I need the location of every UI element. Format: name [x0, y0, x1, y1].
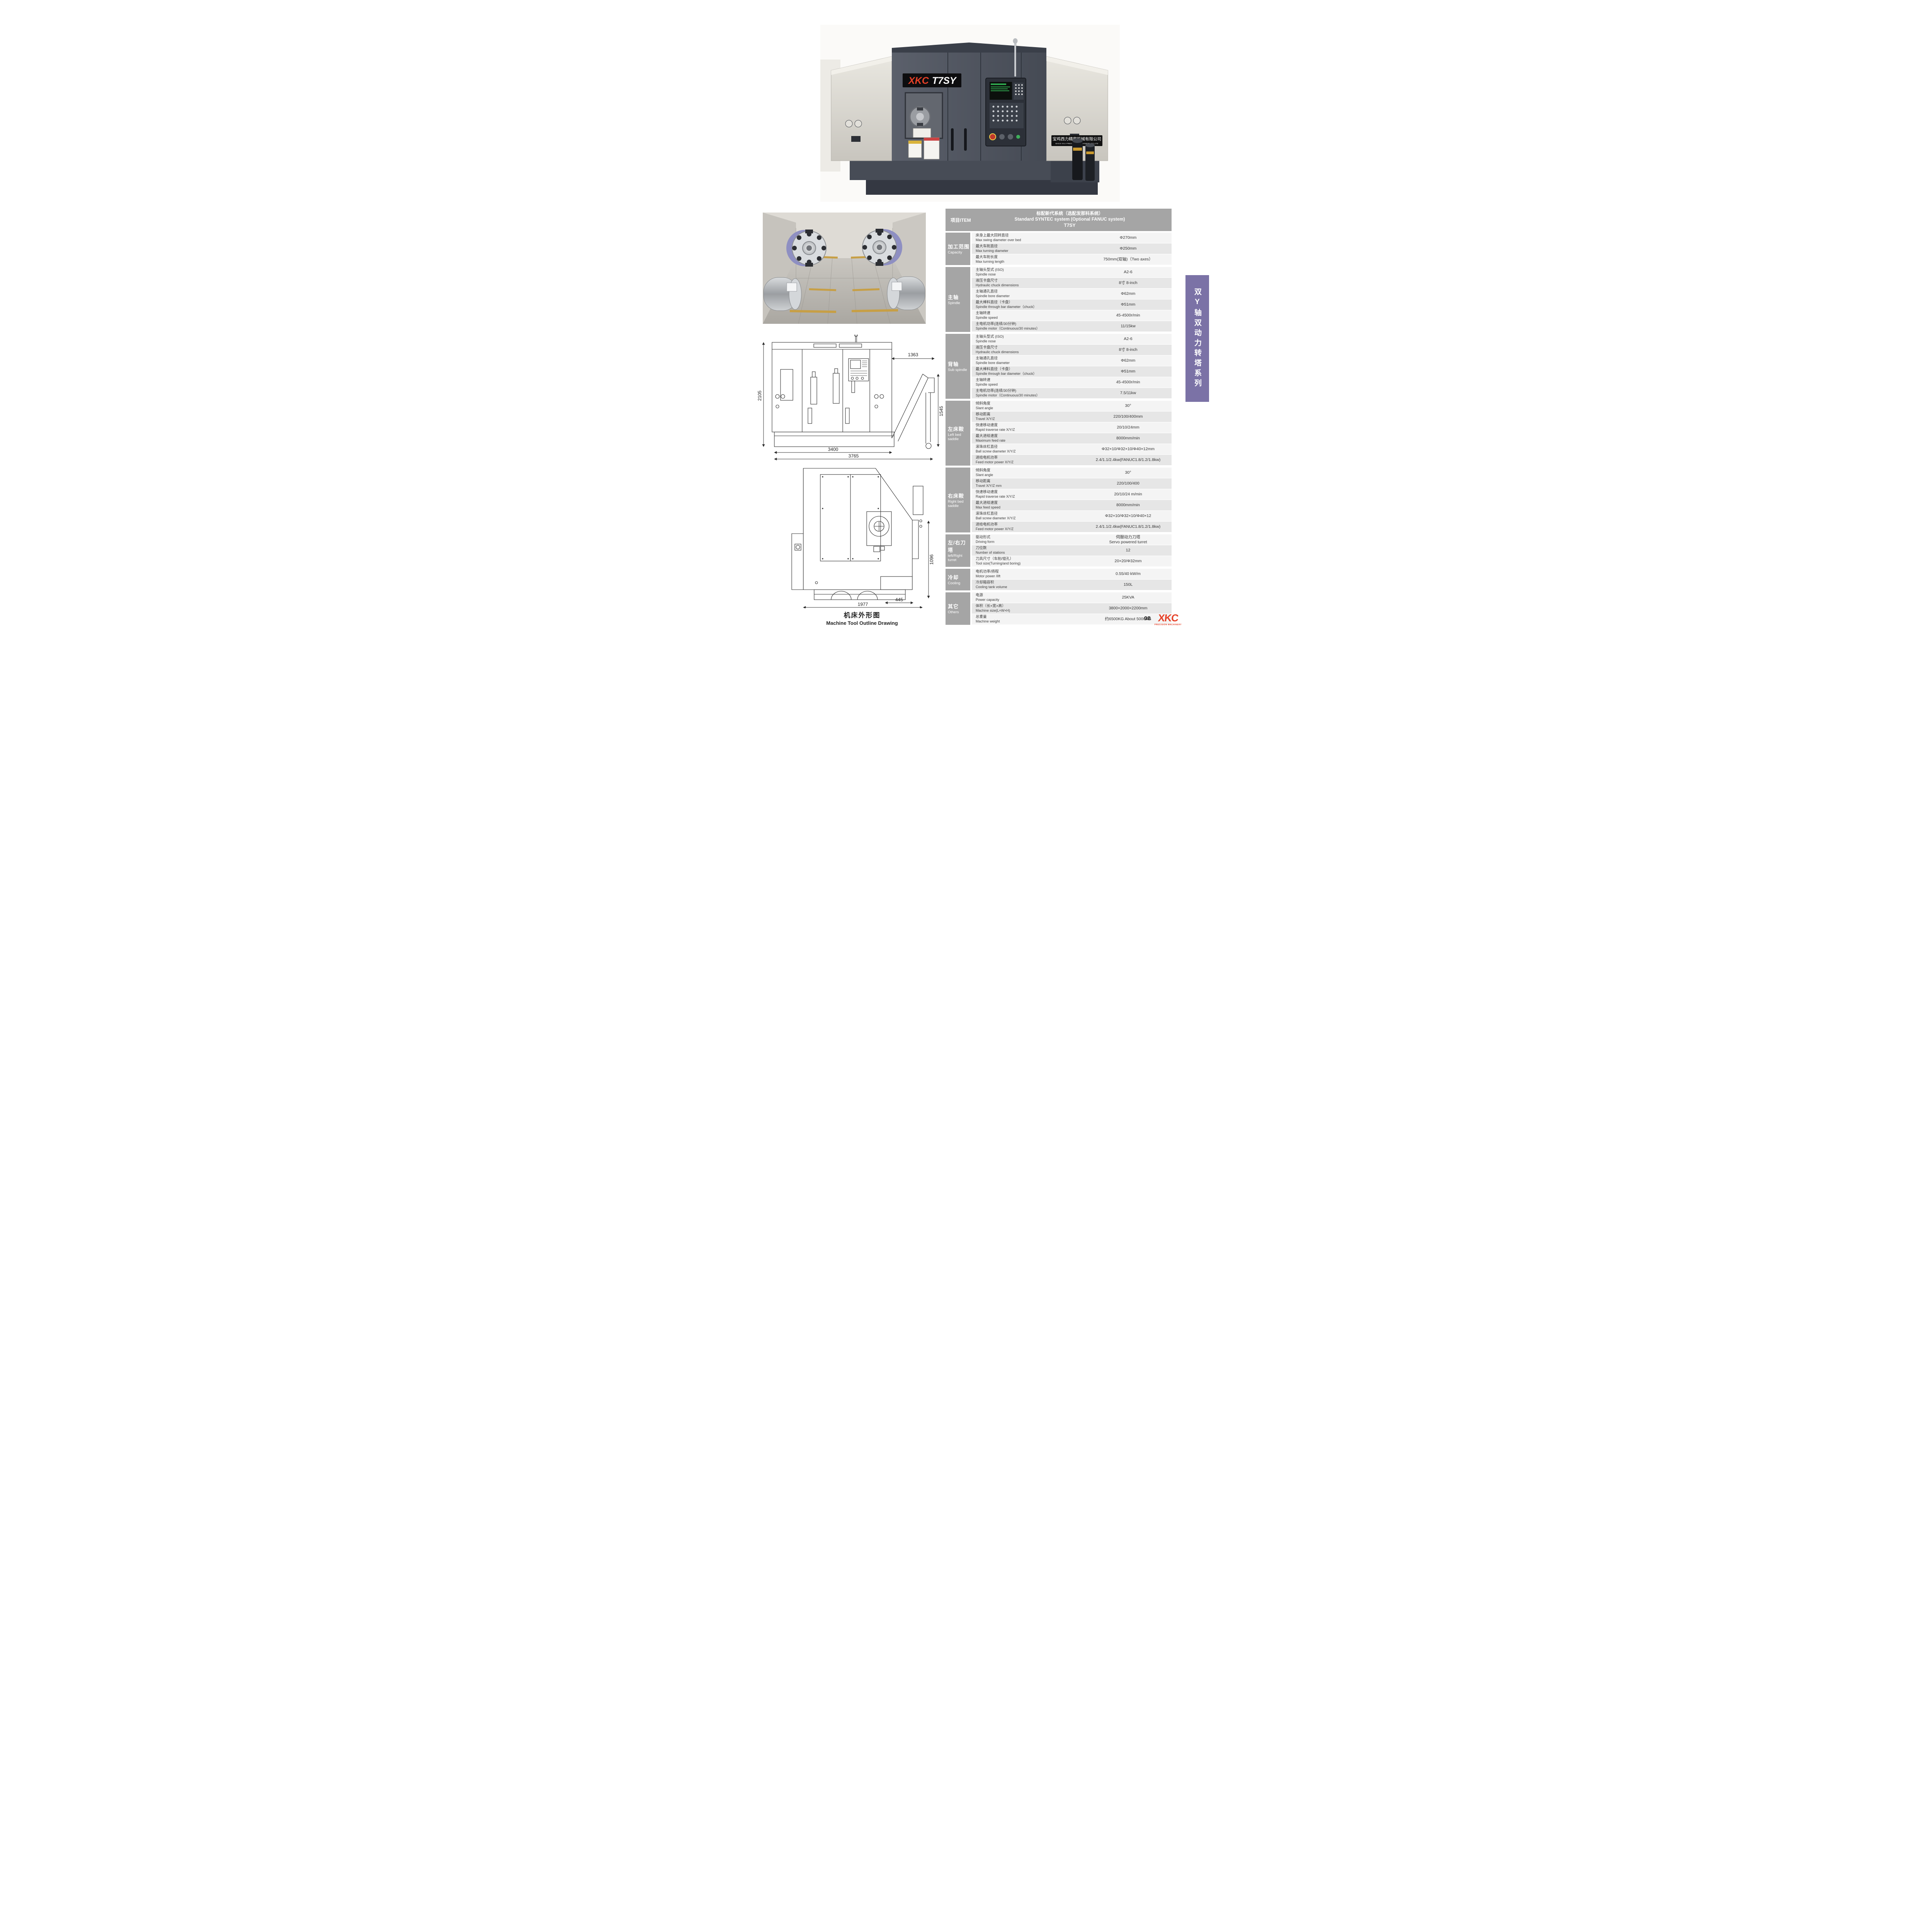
- spec-table-sections: 加工范围Capacity床身上最大回转直径Max swing diameter …: [946, 233, 1172, 625]
- section-rows: 主轴头型式 (ISO)Spindle noseA2-6液压卡盘尺寸Hydraul…: [972, 334, 1172, 399]
- nameplate-brand-text: XKC: [908, 75, 929, 86]
- signal-lamp: [1014, 42, 1016, 77]
- row-label-cn: 电机功率/扬程: [976, 570, 1086, 574]
- row-value: 2.4/1.1/2.4kw(FANUC1.8/1.2/1.8kw): [1086, 524, 1172, 529]
- drawing-caption: 机床外形图 Machine Tool Outline Drawing: [769, 610, 955, 626]
- row-label: 进给电机功率Feed motor power X/Y/Z: [972, 523, 1086, 531]
- spec-row: 体积（长×宽×高）Machine size(L×W×H)3800×2000×22…: [972, 603, 1172, 614]
- row-value-line2: Servo powered turret: [1086, 540, 1170, 544]
- section-label-en: Cooling: [948, 582, 970, 586]
- section-rows: 倾斜角度Slant angle30°移动距离Travel X/Y/Z mm220…: [972, 468, 1172, 532]
- row-label: 主轴转速Spindle speed: [972, 378, 1086, 386]
- system-model: T7SY: [978, 223, 1162, 229]
- row-label-cn: 刀具尺寸（车削/镗孔）: [976, 557, 1086, 561]
- row-label-cn: 最大进给速度: [976, 434, 1086, 439]
- row-value-line: 7.5/11kw: [1086, 391, 1170, 395]
- dim-conveyor-height: 1545: [939, 406, 944, 416]
- row-label: 液压卡盘尺寸Hydraulic chuck dimensions: [972, 346, 1086, 354]
- spec-section: 主轴Spindle主轴头型式 (ISO)Spindle noseA2-6液压卡盘…: [946, 267, 1172, 332]
- spec-table: 项目ITEM 标配新代系统（选配发那科系统） Standard SYNTEC s…: [946, 209, 1172, 625]
- row-value-line: 2.4/1.1/2.4kw(FANUC1.8/1.2/1.8kw): [1086, 457, 1170, 462]
- row-label-en: Cooling tank volume: [976, 585, 1086, 589]
- machine-base: [850, 160, 1066, 180]
- section-label-en: Sub spindle: [948, 368, 970, 372]
- row-label-cn: 主电机功率(连续/30分钟): [976, 322, 1086, 327]
- row-value-line: A2-6: [1086, 270, 1170, 274]
- machine-interior-photo: [763, 213, 926, 324]
- row-value-line: 12: [1086, 548, 1170, 553]
- row-value-line: 3800×2000×2200mm: [1086, 606, 1170, 611]
- row-label: 最大车削直径Max turning diameter: [972, 245, 1086, 253]
- section-label-cn: 冷却: [948, 573, 970, 581]
- emergency-stop-button: [990, 134, 996, 140]
- row-value: 8寸 8-inch: [1086, 347, 1172, 352]
- row-label-en: Max feed speed: [976, 505, 1086, 509]
- spec-row: 倾斜角度Slant angle30°: [972, 468, 1172, 478]
- row-value-line: 伺服动力刀塔: [1086, 535, 1170, 539]
- row-value-line: 30°: [1086, 403, 1170, 408]
- row-value: 220/100/400mm: [1086, 414, 1172, 419]
- row-label-cn: 液压卡盘尺寸: [976, 279, 1086, 283]
- row-label-cn: 主轴头型式 (ISO): [976, 335, 1086, 339]
- row-label-en: Spindle bore diameter: [976, 294, 1086, 298]
- dim-body-width: 3400: [828, 447, 838, 452]
- system-line-cn: 标配新代系统（选配发那科系统）: [978, 211, 1162, 217]
- row-label: 床身上最大回转直径Max swing diameter over bed: [972, 234, 1086, 242]
- row-label-cn: 主电机功率(连续/30分钟): [976, 389, 1086, 393]
- row-label-en: Ball screw diameter X/Y/Z: [976, 449, 1086, 453]
- row-label: 最大进给速度Maximum feed rate: [972, 434, 1086, 442]
- row-value: 150L: [1086, 582, 1172, 587]
- row-label: 冷却箱容积Cooling tank volume: [972, 581, 1086, 589]
- spec-table-header: 项目ITEM 标配新代系统（选配发那科系统） Standard SYNTEC s…: [946, 209, 1172, 231]
- spec-row: 主轴转速Spindle speed45-4500r/min: [972, 310, 1172, 321]
- row-label-cn: 最大车削长度: [976, 255, 1086, 260]
- row-label-en: Driving form: [976, 540, 1086, 544]
- page-number: 08: [1144, 615, 1151, 622]
- row-value-line: Φ51mm: [1086, 302, 1170, 307]
- row-label-cn: 倾斜角度: [976, 402, 1086, 406]
- row-label-en: Hydraulic chuck dimensions: [976, 350, 1086, 354]
- section-rows: 驱动形式Driving form伺服动力刀塔Servo powered turr…: [972, 534, 1172, 567]
- row-label-en: Spindle nose: [976, 272, 1086, 276]
- row-value-line: 20/10/24 m/min: [1086, 492, 1170, 497]
- row-label: 电机功率/扬程Motor power /lift: [972, 570, 1086, 578]
- section-label-cn: 背轴: [948, 360, 970, 367]
- row-value: Φ32×10/Φ32×10/Φ40×12mm: [1086, 447, 1172, 451]
- row-value: 20×20/Φ32mm: [1086, 559, 1172, 563]
- row-label: 移动距离Travel X/Y/Z: [972, 413, 1086, 421]
- row-label: 快速移动速度Rapid traverse rate X/Y/Z: [972, 490, 1086, 498]
- section-label-cn: 其它: [948, 602, 970, 610]
- section-label-en: Spindle: [948, 301, 970, 306]
- spec-row: 最大棒料直径（卡盘）Spindle through bar diameter（c…: [972, 366, 1172, 377]
- row-label: 驱动形式Driving form: [972, 536, 1086, 544]
- row-label-en: Spindle speed: [976, 316, 1086, 320]
- row-value: Φ32×10/Φ32×10/Φ40×12: [1086, 514, 1172, 518]
- row-value: A2-6: [1086, 270, 1172, 274]
- row-label: 倾斜角度Slant angle: [972, 402, 1086, 410]
- page-footer: 08 XKC PRECISION MACHINERY: [1144, 613, 1182, 626]
- row-label-en: Slant angle: [976, 473, 1086, 477]
- row-label-en: Feed motor power X/Y/Z: [976, 527, 1086, 531]
- row-label: 刀具尺寸（车削/镗孔）Tool size(Turning/and boring): [972, 557, 1086, 565]
- row-label: 总重量Machine weight: [972, 615, 1086, 623]
- row-label-cn: 最大进给速度: [976, 501, 1086, 505]
- spec-row: 快速移动速度Rapid traverse rate X/Y/Z20/10/24 …: [972, 489, 1172, 500]
- spec-row: 最大棒料直径（卡盘）Spindle through bar diameter（c…: [972, 299, 1172, 310]
- row-label: 倾斜角度Slant angle: [972, 469, 1086, 477]
- spec-row: 主轴头型式 (ISO)Spindle noseA2-6: [972, 267, 1172, 278]
- section-label: 右床鞍Right bed saddle: [946, 468, 970, 532]
- spec-row: 最大车削直径Max turning diameterΦ250mm: [972, 243, 1172, 254]
- row-label-cn: 进给电机功率: [976, 456, 1086, 460]
- item-header-cell: 项目ITEM: [946, 209, 978, 231]
- spec-row: 电机功率/扬程Motor power /lift0.55/40 kW/m: [972, 569, 1172, 580]
- section-label-en: left/Right turret: [948, 554, 970, 563]
- section-label: 左床鞍Left bed saddle: [946, 401, 970, 466]
- row-label-cn: 快速移动速度: [976, 423, 1086, 428]
- row-label-cn: 驱动形式: [976, 536, 1086, 540]
- nameplate-model-text: T7SY: [932, 75, 957, 86]
- section-rows: 电机功率/扬程Motor power /lift0.55/40 kW/m冷却箱容…: [972, 569, 1172, 590]
- row-label-en: Spindle through bar diameter（chuck）: [976, 305, 1086, 309]
- row-value-line: 11/15kw: [1086, 324, 1170, 328]
- row-value: 45-4500r/min: [1086, 313, 1172, 318]
- row-label-cn: 电源: [976, 594, 1086, 598]
- row-label-cn: 体积（长×宽×高）: [976, 604, 1086, 609]
- right-turret: [862, 229, 902, 266]
- spec-row: 刀具尺寸（车削/镗孔）Tool size(Turning/and boring)…: [972, 556, 1172, 567]
- row-label-cn: 移动距离: [976, 480, 1086, 484]
- section-label-en: Capacity: [948, 251, 970, 255]
- section-rows: 主轴头型式 (ISO)Spindle noseA2-6液压卡盘尺寸Hydraul…: [972, 267, 1172, 332]
- row-label-en: Power capacity: [976, 598, 1086, 602]
- row-label-en: Maximum feed rate: [976, 439, 1086, 442]
- row-value-line: Φ62mm: [1086, 291, 1170, 296]
- row-value: Φ270mm: [1086, 235, 1172, 240]
- section-label: 左/右刀塔left/Right turret: [946, 534, 970, 567]
- row-label-en: Spindle speed: [976, 383, 1086, 386]
- row-value-line: 220/100/400: [1086, 481, 1170, 486]
- interior-illustration: [763, 213, 926, 324]
- side-outline-drawing: 1096 445 1977: [777, 462, 947, 608]
- row-label-cn: 快速移动速度: [976, 490, 1086, 495]
- door-handle-left: [951, 128, 954, 151]
- row-label-en: Machine weight: [976, 619, 1086, 623]
- row-value-line: 220/100/400mm: [1086, 414, 1170, 419]
- row-label-en: Travel X/Y/Z mm: [976, 484, 1086, 488]
- spec-section: 其它Others电源Power capacity25KVA体积（长×宽×高）Ma…: [946, 592, 1172, 625]
- row-label-cn: 总重量: [976, 615, 1086, 619]
- caption-en: Machine Tool Outline Drawing: [769, 620, 955, 626]
- spec-row: 最大进给速度Maximum feed rate8000mm/min: [972, 433, 1172, 444]
- dim-overall-width: 3765: [849, 453, 859, 459]
- row-label-en: Rapid traverse rate X/Y/Z: [976, 428, 1086, 432]
- row-label-cn: 主轴通孔直径: [976, 357, 1086, 361]
- row-value-line: Φ32×10/Φ32×10/Φ40×12mm: [1086, 447, 1170, 451]
- row-label-cn: 最大棒料直径（卡盘）: [976, 301, 1086, 305]
- row-label: 最大进给速度Max feed speed: [972, 501, 1086, 509]
- section-rows: 电源Power capacity25KVA体积（长×宽×高）Machine si…: [972, 592, 1172, 625]
- row-label-cn: 最大车削直径: [976, 245, 1086, 249]
- door-handle-right: [964, 128, 967, 151]
- section-label: 加工范围Capacity: [946, 233, 970, 265]
- row-label: 滚珠丝杠直径Ball screw diameter X/Y/Z: [972, 445, 1086, 453]
- row-value: 2.4/1.1/2.4kw(FANUC1.8/1.2/1.8kw): [1086, 457, 1172, 462]
- row-value: A2-6: [1086, 337, 1172, 341]
- section-label-cn: 右床鞍: [948, 492, 970, 499]
- row-label-en: Max turning diameter: [976, 249, 1086, 253]
- row-label-cn: 移动距离: [976, 413, 1086, 417]
- brand-logo-text: XKC: [1154, 613, 1182, 623]
- row-label-cn: 进给电机功率: [976, 523, 1086, 527]
- row-value-line: Φ270mm: [1086, 235, 1170, 240]
- row-label: 刀位数Number of stations: [972, 546, 1086, 554]
- row-label: 最大棒料直径（卡盘）Spindle through bar diameter（c…: [972, 301, 1086, 309]
- row-value: 8000mm/min: [1086, 503, 1172, 507]
- row-label: 快速移动速度Rapid traverse rate X/Y/Z: [972, 423, 1086, 432]
- row-label-en: Hydraulic chuck dimensions: [976, 283, 1086, 287]
- row-value: Φ250mm: [1086, 246, 1172, 251]
- spec-section: 左床鞍Left bed saddle倾斜角度Slant angle30°移动距离…: [946, 401, 1172, 466]
- spec-row: 移动距离Travel X/Y/Z mm220/100/400: [972, 478, 1172, 489]
- spec-section: 左/右刀塔left/Right turret驱动形式Driving form伺服…: [946, 534, 1172, 567]
- row-value: 750mm(双轴)（Two axes）: [1086, 257, 1172, 262]
- spec-row: 滚珠丝杠直径Ball screw diameter X/Y/ZΦ32×10/Φ3…: [972, 444, 1172, 455]
- row-value: 伺服动力刀塔Servo powered turret: [1086, 535, 1172, 544]
- brand-logo-subtext: PRECISION MACHINERY: [1155, 624, 1182, 626]
- spec-row: 进给电机功率Feed motor power X/Y/Z2.4/1.1/2.4k…: [972, 455, 1172, 466]
- section-label: 冷却Cooling: [946, 569, 970, 590]
- row-value-line: 8000mm/min: [1086, 503, 1170, 507]
- row-label: 主电机功率(连续/30分钟)Spindle motor（Continuous/3…: [972, 389, 1086, 397]
- row-label-en: Spindle bore diameter: [976, 361, 1086, 365]
- row-value-line: 0.55/40 kW/m: [1086, 571, 1170, 576]
- control-pendant: [986, 78, 1026, 146]
- row-label-cn: 最大棒料直径（卡盘）: [976, 367, 1086, 372]
- spec-row: 最大进给速度Max feed speed8000mm/min: [972, 500, 1172, 511]
- side-view-svg: 1096 445 1977: [777, 462, 947, 608]
- machine-product-photo: XKC T7SY: [820, 25, 1120, 202]
- front-view-svg: 2105 1363 1545 3400 3765: [756, 335, 949, 462]
- spec-row: 主轴转速Spindle speed45-4500r/min: [972, 377, 1172, 388]
- machine-illustration: XKC T7SY: [820, 25, 1120, 202]
- cnc-keypad: [1014, 83, 1024, 100]
- series-banner-text: 双Y轴双动力转塔系列: [1192, 288, 1202, 389]
- row-value-line: Φ51mm: [1086, 369, 1170, 374]
- row-label: 主轴头型式 (ISO)Spindle nose: [972, 335, 1086, 343]
- spec-section: 背轴Sub spindle主轴头型式 (ISO)Spindle noseA2-6…: [946, 334, 1172, 399]
- row-label: 液压卡盘尺寸Hydraulic chuck dimensions: [972, 279, 1086, 287]
- row-value-line: 20/10/24mm: [1086, 425, 1170, 430]
- spec-row: 刀位数Number of stations12: [972, 545, 1172, 556]
- row-label-en: Rapid traverse rate X/Y/Z: [976, 495, 1086, 498]
- row-value-line: 8寸 8-inch: [1086, 347, 1170, 352]
- spec-row: 总重量Machine weight约6500KG About 5000KG: [972, 614, 1172, 625]
- right-chuck: [887, 277, 925, 310]
- spec-row: 主轴头型式 (ISO)Spindle noseA2-6: [972, 334, 1172, 345]
- front-outline-drawing: 2105 1363 1545 3400 3765: [756, 335, 949, 462]
- spec-row: 倾斜角度Slant angle30°: [972, 401, 1172, 412]
- spec-row: 电源Power capacity25KVA: [972, 592, 1172, 603]
- spec-row: 移动距离Travel X/Y/Z220/100/400mm: [972, 412, 1172, 422]
- row-label: 电源Power capacity: [972, 594, 1086, 602]
- row-value-line: 20×20/Φ32mm: [1086, 559, 1170, 563]
- row-label-en: Number of stations: [976, 551, 1086, 554]
- left-chuck: [764, 277, 801, 311]
- spec-section: 加工范围Capacity床身上最大回转直径Max swing diameter …: [946, 233, 1172, 265]
- section-label-cn: 加工范围: [948, 243, 970, 250]
- row-value-line: Φ62mm: [1086, 358, 1170, 363]
- row-label-cn: 主轴头型式 (ISO): [976, 268, 1086, 272]
- row-value: Φ51mm: [1086, 302, 1172, 307]
- dim-tank-width: 445: [895, 597, 903, 602]
- row-value: 20/10/24 m/min: [1086, 492, 1172, 497]
- row-value: Φ51mm: [1086, 369, 1172, 374]
- spec-section: 右床鞍Right bed saddle倾斜角度Slant angle30°移动距…: [946, 468, 1172, 532]
- row-label-en: Slant angle: [976, 406, 1086, 410]
- row-label: 进给电机功率Feed motor power X/Y/Z: [972, 456, 1086, 464]
- row-value: Φ62mm: [1086, 358, 1172, 363]
- row-label-en: Max swing diameter over bed: [976, 238, 1086, 242]
- row-value: 20/10/24mm: [1086, 425, 1172, 430]
- section-label-en: Left bed saddle: [948, 433, 970, 442]
- spec-section: 冷却Cooling电机功率/扬程Motor power /lift0.55/40…: [946, 569, 1172, 590]
- row-label-en: Max turning length: [976, 260, 1086, 264]
- row-value: 3800×2000×2200mm: [1086, 606, 1172, 611]
- row-label-cn: 床身上最大回转直径: [976, 234, 1086, 238]
- row-label-cn: 滚珠丝杠直径: [976, 512, 1086, 516]
- spec-row: 主轴通孔直径Spindle bore diameterΦ62mm: [972, 289, 1172, 299]
- system-line-en: Standard SYNTEC system (Optional FANUC s…: [978, 217, 1162, 223]
- row-label: 移动距离Travel X/Y/Z mm: [972, 480, 1086, 488]
- row-value: 11/15kw: [1086, 324, 1172, 328]
- row-label: 主电机功率(连续/30分钟)Spindle motor（Continuous/3…: [972, 322, 1086, 330]
- row-label: 主轴头型式 (ISO)Spindle nose: [972, 268, 1086, 276]
- row-label: 体积（长×宽×高）Machine size(L×W×H): [972, 604, 1086, 612]
- dim-conveyor-width: 1363: [908, 352, 918, 357]
- row-value: 8寸 8-inch: [1086, 281, 1172, 285]
- row-label-en: Spindle nose: [976, 339, 1086, 343]
- row-value-line: 45-4500r/min: [1086, 313, 1170, 318]
- row-value-line: A2-6: [1086, 337, 1170, 341]
- section-label-cn: 左/右刀塔: [948, 539, 970, 553]
- row-label-en: Feed motor power X/Y/Z: [976, 460, 1086, 464]
- spec-row: 冷却箱容积Cooling tank volume150L: [972, 580, 1172, 590]
- row-label: 主轴通孔直径Spindle bore diameter: [972, 357, 1086, 365]
- row-value: 220/100/400: [1086, 481, 1172, 486]
- row-value-line: 25KVA: [1086, 595, 1170, 600]
- row-label-cn: 主轴通孔直径: [976, 290, 1086, 294]
- spec-row: 主轴通孔直径Spindle bore diameterΦ62mm: [972, 355, 1172, 366]
- row-label-en: Spindle through bar diameter（chuck）: [976, 372, 1086, 376]
- row-label-cn: 主轴转速: [976, 378, 1086, 383]
- row-value: 8000mm/min: [1086, 436, 1172, 440]
- row-value: 30°: [1086, 470, 1172, 475]
- spec-row: 主电机功率(连续/30分钟)Spindle motor（Continuous/3…: [972, 321, 1172, 332]
- section-label-cn: 主轴: [948, 293, 970, 301]
- row-value-line: 8寸 8-inch: [1086, 281, 1170, 285]
- spec-row: 床身上最大回转直径Max swing diameter over bedΦ270…: [972, 233, 1172, 243]
- spec-row: 滚珠丝杠直径Ball screw diameter X/Y/ZΦ32×10/Φ3…: [972, 511, 1172, 522]
- section-rows: 床身上最大回转直径Max swing diameter over bedΦ270…: [972, 233, 1172, 265]
- dim-depth-total: 1977: [858, 602, 868, 607]
- row-value-line: Φ250mm: [1086, 246, 1170, 251]
- row-label-en: Machine size(L×W×H): [976, 609, 1086, 612]
- section-label: 背轴Sub spindle: [946, 334, 970, 399]
- row-label-cn: 滚珠丝杠直径: [976, 445, 1086, 449]
- row-value: 30°: [1086, 403, 1172, 408]
- row-label-en: Ball screw diameter X/Y/Z: [976, 516, 1086, 520]
- spec-row: 主电机功率(连续/30分钟)Spindle motor（Continuous/3…: [972, 388, 1172, 399]
- row-value-line: Φ32×10/Φ32×10/Φ40×12: [1086, 514, 1170, 518]
- spec-row: 液压卡盘尺寸Hydraulic chuck dimensions8寸 8-inc…: [972, 278, 1172, 289]
- row-value-line: 8000mm/min: [1086, 436, 1170, 440]
- row-value-line: 45-4500r/min: [1086, 380, 1170, 384]
- section-label: 主轴Spindle: [946, 267, 970, 332]
- caption-cn: 机床外形图: [769, 610, 955, 619]
- dim-side-height: 1096: [929, 554, 934, 565]
- spec-row: 最大车削长度Max turning length750mm(双轴)（Two ax…: [972, 254, 1172, 265]
- row-label: 主轴转速Spindle speed: [972, 311, 1086, 320]
- row-value-line: 30°: [1086, 470, 1170, 475]
- row-label: 最大棒料直径（卡盘）Spindle through bar diameter（c…: [972, 367, 1086, 376]
- spec-row: 驱动形式Driving form伺服动力刀塔Servo powered turr…: [972, 534, 1172, 545]
- row-value: 45-4500r/min: [1086, 380, 1172, 384]
- row-value: 12: [1086, 548, 1172, 553]
- row-label: 最大车削长度Max turning length: [972, 255, 1086, 264]
- spec-row: 进给电机功率Feed motor power X/Y/Z2.4/1.1/2.4k…: [972, 522, 1172, 532]
- row-value-line: 2.4/1.1/2.4kw(FANUC1.8/1.2/1.8kw): [1086, 524, 1170, 529]
- row-value: 7.5/11kw: [1086, 391, 1172, 395]
- section-label-cn: 左床鞍: [948, 425, 970, 432]
- left-turret: [786, 230, 826, 267]
- row-label-en: Travel X/Y/Z: [976, 417, 1086, 421]
- row-value-line: 750mm(双轴)（Two axes）: [1086, 257, 1170, 262]
- dim-front-height: 2105: [757, 390, 762, 401]
- row-label-en: Tool size(Turning/and boring): [976, 561, 1086, 565]
- section-rows: 倾斜角度Slant angle30°移动距离Travel X/Y/Z220/10…: [972, 401, 1172, 466]
- row-value: 25KVA: [1086, 595, 1172, 600]
- spec-row: 快速移动速度Rapid traverse rate X/Y/Z20/10/24m…: [972, 422, 1172, 433]
- catalog-page: XKC T7SY: [723, 0, 1209, 664]
- row-label-en: Motor power /lift: [976, 574, 1086, 578]
- row-label: 滚珠丝杠直径Ball screw diameter X/Y/Z: [972, 512, 1086, 520]
- section-label-en: Right bed saddle: [948, 500, 970, 509]
- row-value: 0.55/40 kW/m: [1086, 571, 1172, 576]
- row-value-line: 150L: [1086, 582, 1170, 587]
- row-label-cn: 刀位数: [976, 546, 1086, 551]
- row-label-en: Spindle motor（Continuous/30 minutes）: [976, 393, 1086, 397]
- series-banner: 双Y轴双动力转塔系列: [1185, 275, 1209, 402]
- system-header-cell: 标配新代系统（选配发那科系统） Standard SYNTEC system (…: [978, 209, 1172, 231]
- row-label-cn: 倾斜角度: [976, 469, 1086, 473]
- row-label-cn: 主轴转速: [976, 311, 1086, 316]
- row-label-cn: 冷却箱容积: [976, 581, 1086, 585]
- model-nameplate: XKC T7SY: [903, 73, 961, 87]
- row-label-en: Spindle motor（Continuous/30 minutes）: [976, 327, 1086, 330]
- brand-logo: XKC PRECISION MACHINERY: [1155, 613, 1182, 626]
- row-label: 主轴通孔直径Spindle bore diameter: [972, 290, 1086, 298]
- row-value: Φ62mm: [1086, 291, 1172, 296]
- spec-row: 液压卡盘尺寸Hydraulic chuck dimensions8寸 8-inc…: [972, 345, 1172, 355]
- row-label-cn: 液压卡盘尺寸: [976, 346, 1086, 350]
